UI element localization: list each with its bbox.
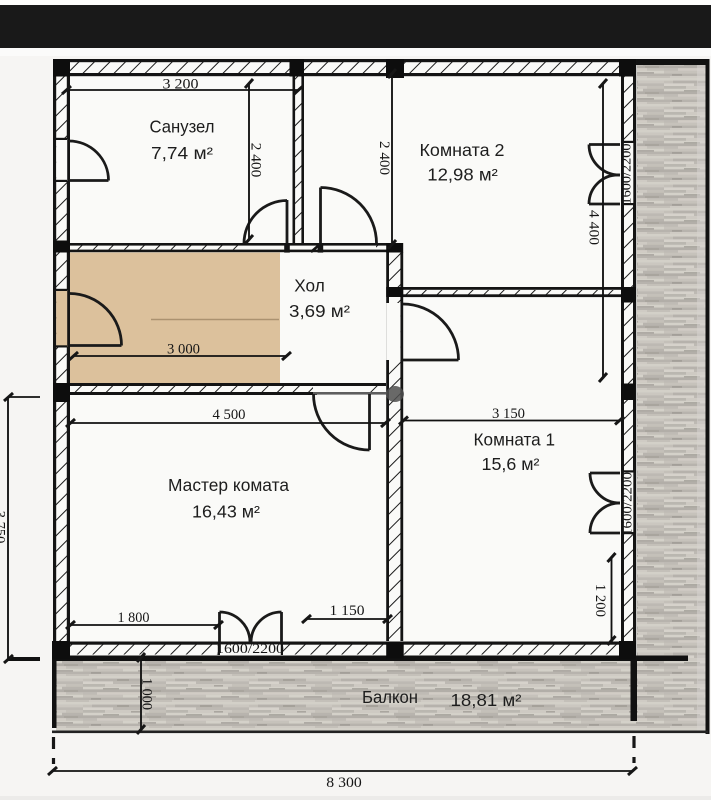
svg-text:16,43 м²: 16,43 м² <box>192 502 260 522</box>
svg-text:1600/2200: 1600/2200 <box>619 143 634 204</box>
svg-text:18,81 м²: 18,81 м² <box>451 690 522 710</box>
svg-text:3,69 м²: 3,69 м² <box>289 301 350 321</box>
svg-text:12,98 м²: 12,98 м² <box>427 165 498 185</box>
svg-text:1 000: 1 000 <box>139 678 155 710</box>
svg-text:2 400: 2 400 <box>248 143 264 178</box>
svg-text:3 750: 3 750 <box>0 511 8 544</box>
svg-text:Балкон: Балкон <box>362 687 418 707</box>
svg-text:8 300: 8 300 <box>326 775 362 791</box>
svg-text:4 400: 4 400 <box>586 210 602 245</box>
svg-text:3 200: 3 200 <box>163 77 199 93</box>
svg-text:1 150: 1 150 <box>330 603 365 619</box>
svg-text:3 150: 3 150 <box>492 406 525 422</box>
svg-text:1 200: 1 200 <box>592 584 608 617</box>
svg-text:Санузел: Санузел <box>150 117 215 137</box>
svg-text:2 400: 2 400 <box>376 141 392 175</box>
svg-text:15,6 м²: 15,6 м² <box>482 454 540 474</box>
svg-text:3 000: 3 000 <box>167 342 200 358</box>
svg-text:1600/2200: 1600/2200 <box>620 472 635 536</box>
svg-text:4 500: 4 500 <box>213 407 246 423</box>
svg-text:7,74 м²: 7,74 м² <box>151 143 213 163</box>
svg-text:Комната 2: Комната 2 <box>420 140 505 160</box>
svg-text:1600/2200: 1600/2200 <box>216 641 284 656</box>
svg-text:Хол: Хол <box>294 276 325 296</box>
svg-text:1 800: 1 800 <box>118 610 150 626</box>
svg-text:Мастер комата: Мастер комата <box>168 475 289 495</box>
svg-text:Комната 1: Комната 1 <box>474 430 556 450</box>
